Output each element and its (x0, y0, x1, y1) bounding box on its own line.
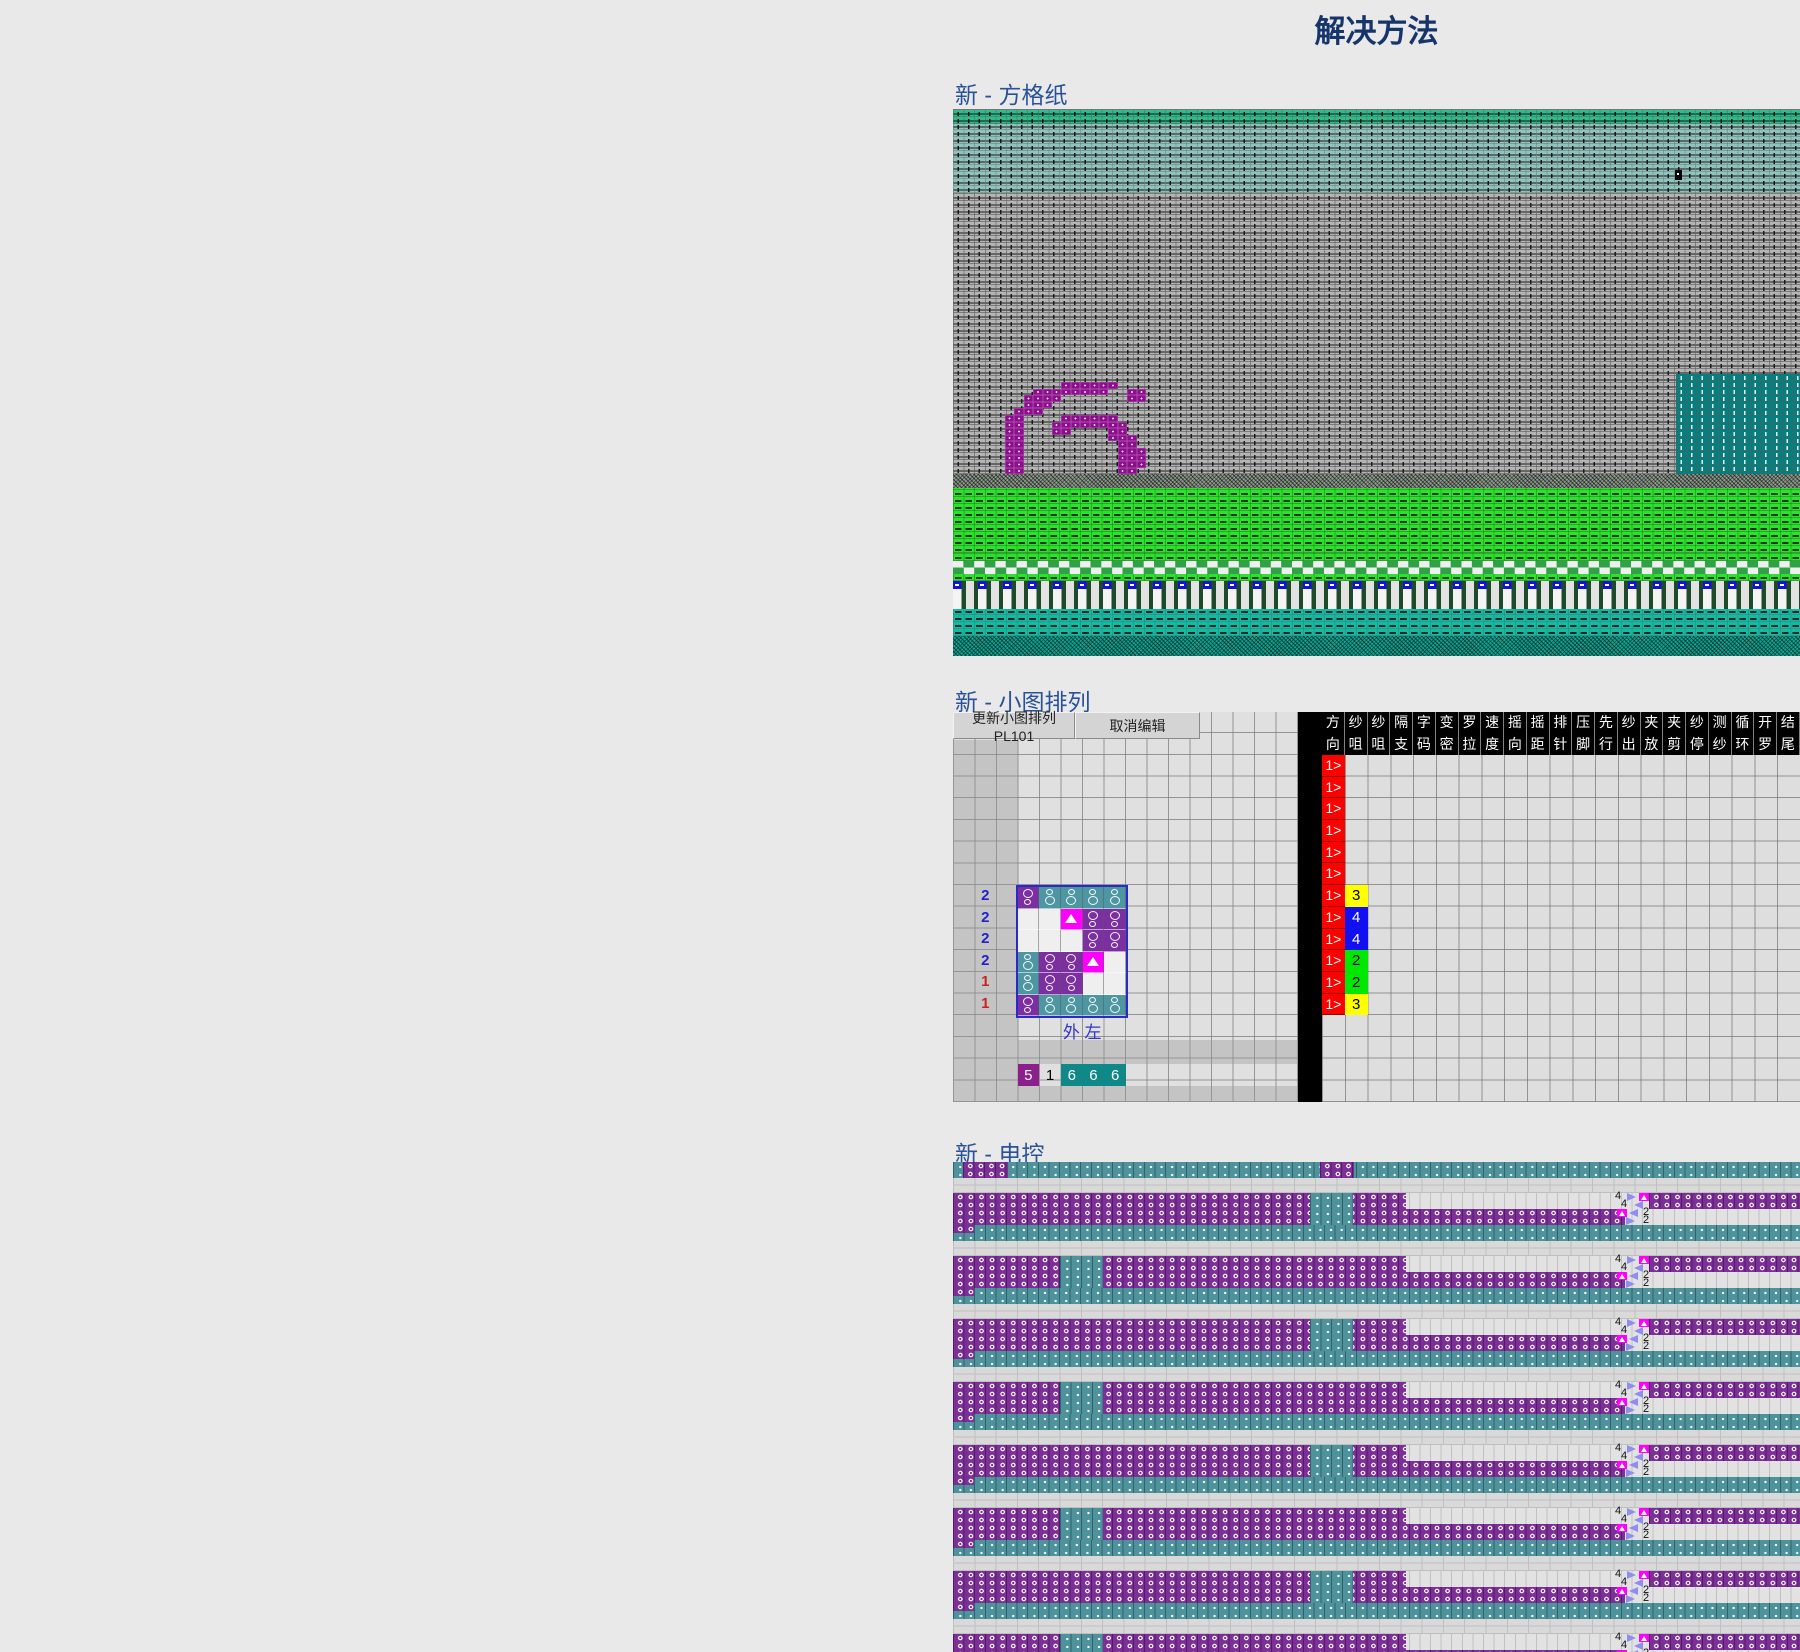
digit-pixel (1061, 389, 1070, 396)
stitch-ring-icon (1088, 1004, 1098, 1013)
stitch-ring-icon (1046, 964, 1053, 970)
direction-cell[interactable]: 1> (1322, 950, 1345, 972)
update-arrangement-button[interactable]: 更新小图排列 PL101 (953, 712, 1075, 739)
column-header: 变密 (1436, 712, 1459, 755)
econtrol-segment (1060, 1508, 1103, 1516)
digit-pixel (1118, 428, 1127, 435)
digit-pixel (1127, 455, 1136, 462)
direction-cell[interactable]: 1> (1322, 863, 1345, 885)
table-row[interactable]: 1> (1322, 755, 1800, 777)
econtrol-segment (1649, 1327, 1800, 1335)
pattern-cell[interactable] (1083, 973, 1105, 995)
pattern-footer-label: 外 (1061, 1018, 1083, 1043)
column-header: 隔支 (1390, 712, 1413, 755)
econtrol-segment (953, 1390, 1406, 1398)
econtrol-row (953, 1414, 1800, 1422)
carriage-right-icon (1627, 1571, 1636, 1579)
digit-pixel (1137, 455, 1146, 462)
pass-count: 2 (1643, 1594, 1649, 1603)
carriage-right-icon (1626, 1217, 1635, 1225)
econtrol-segment (953, 1603, 974, 1611)
column-header: 测纱 (1709, 712, 1732, 755)
transfer-cell (1617, 1461, 1627, 1469)
econtrol-segment (1310, 1319, 1353, 1327)
stitch-ring-icon (1111, 942, 1118, 948)
table-row[interactable]: 1>4 (1322, 929, 1800, 951)
band-teal-dense (953, 636, 1800, 656)
stitch-ring-icon (1066, 954, 1076, 963)
carriage-right-icon (1627, 1256, 1636, 1264)
econtrol-segment (1320, 1170, 1354, 1178)
table-row[interactable]: 1>3 (1322, 994, 1800, 1016)
econtrol-row (953, 1485, 1800, 1493)
stitch-ring-icon (1023, 889, 1033, 898)
stitch-ring-icon (1046, 985, 1053, 991)
digit-pixel (1005, 428, 1014, 435)
direction-cell[interactable]: 1> (1322, 777, 1345, 799)
pattern-footer-label: 左 (1082, 1018, 1104, 1043)
stitch-ring-icon (1111, 997, 1118, 1003)
page-title: 解决方法 (953, 6, 1800, 51)
digit-pixel (1033, 402, 1042, 409)
digit-pixel (1014, 415, 1023, 422)
econtrol-row (953, 1359, 1800, 1367)
econtrol-row (953, 1540, 1800, 1548)
grid-paper-canvas[interactable] (953, 109, 1800, 656)
econtrol-segment (1649, 1579, 1800, 1587)
stitch-ring-icon (1024, 954, 1031, 960)
econtrol-segment (1649, 1319, 1800, 1327)
pattern-cell[interactable] (1083, 930, 1105, 952)
band-gray (953, 193, 1800, 474)
column-header: 纱停 (1686, 712, 1709, 755)
digit-pixel (1071, 422, 1080, 429)
econtrol-row: 4 (953, 1579, 1800, 1587)
digit-pixel (1014, 408, 1023, 415)
table-row[interactable]: 1>3 (1322, 885, 1800, 907)
stitch-ring-icon (1024, 1007, 1031, 1013)
transfer-cell (1639, 1508, 1649, 1516)
table-row[interactable]: 1> (1322, 863, 1800, 885)
econtrol-segment (1649, 1264, 1800, 1272)
carriage-right-icon (1627, 1634, 1636, 1642)
econtrol-segment (1310, 1579, 1353, 1587)
econtrol-segment (1310, 1469, 1353, 1477)
digit-pixel (1118, 448, 1127, 455)
pattern-cell[interactable] (1061, 887, 1083, 909)
carriage-right-icon (1627, 1508, 1636, 1516)
digit-pixel (1137, 461, 1146, 468)
carriage-right-icon (1626, 1532, 1635, 1540)
stitch-ring-icon (1045, 975, 1055, 984)
digit-pixel (1127, 435, 1136, 442)
transfer-caret-icon (1087, 957, 1099, 966)
econtrol-segment (953, 1634, 1406, 1642)
econtrol-row: 4 (953, 1327, 1800, 1335)
pattern-cell[interactable] (1039, 909, 1061, 931)
direction-cell[interactable]: 1> (1322, 907, 1345, 929)
econtrol-segment (953, 1477, 1800, 1485)
econtrol-segment (1060, 1398, 1103, 1406)
econtrol-segment (953, 1485, 1800, 1493)
stitch-ring-icon (1110, 896, 1120, 905)
pattern-cell[interactable] (1083, 909, 1105, 931)
econtrol-row: 2 (953, 1461, 1800, 1469)
carriage-left-icon (1629, 1398, 1638, 1406)
econtrol-segment (1310, 1453, 1353, 1461)
stitch-ring-icon (1066, 1004, 1076, 1013)
stitch-ring-icon (1023, 997, 1033, 1006)
pattern-cell[interactable] (1018, 930, 1040, 952)
pattern-cell[interactable] (1104, 909, 1126, 931)
digit-pixel (1033, 395, 1042, 402)
transfer-cell (1617, 1524, 1627, 1532)
direction-cell[interactable]: 1> (1322, 820, 1345, 842)
count-cell[interactable]: 6 (1083, 1064, 1105, 1086)
econtrol-segment (953, 1359, 1800, 1367)
mini-pattern-block[interactable] (1018, 887, 1127, 1016)
econtrol-row (953, 1162, 1800, 1170)
band-blue-columns (953, 581, 1800, 609)
econtrol-row (953, 1233, 1800, 1241)
digit-pixel (1090, 382, 1099, 389)
econtrol-row: 2 (953, 1524, 1800, 1532)
digit-pixel (1099, 415, 1108, 422)
econtrol-segment (1310, 1587, 1353, 1595)
pattern-row-label: 2 (975, 952, 997, 969)
pattern-cell[interactable] (1104, 995, 1126, 1017)
band-checker (953, 561, 1800, 574)
econtrol-segment (953, 1296, 1800, 1304)
econtrol-row: 4 (953, 1445, 1800, 1453)
stitch-ring-icon (1088, 896, 1098, 905)
yarn-cell[interactable]: 4 (1345, 929, 1368, 951)
econtrol-segment (1060, 1406, 1103, 1414)
econtrol-segment (953, 1642, 1406, 1650)
digit-pixel (1080, 389, 1089, 396)
pattern-cell[interactable] (1018, 995, 1040, 1017)
transfer-cell (1639, 1382, 1649, 1390)
econtrol-row: 2 (953, 1209, 1800, 1217)
econtrol-segment (953, 1611, 1800, 1619)
econtrol-segment (1649, 1508, 1800, 1516)
transfer-cell (1639, 1256, 1649, 1264)
section-label-grid-paper: 新 - 方格纸 (955, 76, 1067, 110)
digit-pixel (1108, 382, 1117, 389)
econtrol-segment (953, 1477, 974, 1485)
transfer-cell (1639, 1445, 1649, 1453)
digit-pixel (1014, 435, 1023, 442)
digit-pixel (1033, 408, 1042, 415)
pattern-cell[interactable] (1104, 887, 1126, 909)
direction-cell[interactable]: 1> (1322, 994, 1345, 1016)
econtrol-spacer-row (953, 1241, 1800, 1256)
pattern-cell[interactable] (1061, 995, 1083, 1017)
econtrol-row: 2 (953, 1595, 1800, 1603)
pattern-cell[interactable] (1061, 973, 1083, 995)
column-header: 方向 (1322, 712, 1345, 755)
econtrol-row: 2 (953, 1398, 1800, 1406)
stitch-ring-icon (1024, 899, 1031, 905)
carriage-right-icon (1626, 1343, 1635, 1351)
column-header: 罗拉 (1459, 712, 1482, 755)
digit-pixel (1118, 461, 1127, 468)
grid-shaded-strip2 (1018, 1086, 1299, 1102)
digit-pixel (1099, 389, 1108, 396)
column-header: 夹剪 (1663, 712, 1686, 755)
digit-pixel (1033, 389, 1042, 396)
arrangement-grid[interactable]: 更新小图排列 PL101 取消编辑 222211 外左 51666 (953, 712, 1298, 1102)
stitch-ring-icon (1045, 954, 1055, 963)
pass-count: 4 (1621, 1326, 1627, 1335)
econtrol-segment (1060, 1516, 1103, 1524)
econtrol-segment (953, 1532, 1625, 1540)
econtrol-row: 4 (953, 1319, 1800, 1327)
pass-count: 2 (1643, 1531, 1649, 1540)
digit-pixel (1071, 415, 1080, 422)
econtrol-segment (963, 1162, 1008, 1170)
digit-pixel (1118, 441, 1127, 448)
econtrol-segment (953, 1540, 974, 1548)
econtrol-row (953, 1225, 1800, 1233)
transfer-cell (1639, 1193, 1649, 1201)
econtrol-segment (1310, 1201, 1353, 1209)
econtrol-segment (1649, 1642, 1800, 1650)
transfer-caret-icon (1065, 914, 1077, 923)
arrangement-table[interactable]: 方向纱咀纱咀隔支字码变密罗拉速度摇向摇距排针压脚先行纱出夹放夹剪纱停测纱循环开罗… (1322, 712, 1800, 1102)
carriage-left-icon (1634, 1201, 1643, 1209)
transfer-cell (1639, 1634, 1649, 1642)
count-cell[interactable]: 6 (1104, 1064, 1126, 1086)
pattern-cell[interactable] (1061, 930, 1083, 952)
digit-pixel (1080, 415, 1089, 422)
econtrol-segment (953, 1516, 1406, 1524)
yarn-cell[interactable]: 4 (1345, 907, 1368, 929)
count-cell[interactable]: 1 (1039, 1064, 1061, 1086)
digit-pixel (1005, 435, 1014, 442)
econtrol-row: 4 (953, 1571, 1800, 1579)
econtrol-spacer-row (953, 1304, 1800, 1319)
pattern-cell[interactable] (1104, 952, 1126, 974)
stitch-ring-icon (1066, 896, 1076, 905)
digit-pixel (1005, 448, 1014, 455)
table-row[interactable]: 1> (1322, 777, 1800, 799)
count-cell[interactable]: 5 (1018, 1064, 1040, 1086)
econtrol-segment (1649, 1571, 1800, 1579)
digit-pixel (1061, 415, 1070, 422)
digit-pixel (1005, 441, 1014, 448)
digit-pixel (1005, 415, 1014, 422)
transfer-cell (1617, 1398, 1627, 1406)
pattern-cell[interactable] (1039, 952, 1061, 974)
econtrol-segment (1649, 1382, 1800, 1390)
band-green-mark-row2 (953, 574, 1800, 581)
pass-count: 2 (1643, 1468, 1649, 1477)
direction-cell[interactable]: 1> (1322, 929, 1345, 951)
stitch-ring-icon (1110, 932, 1120, 941)
econtrol-row: 4 (953, 1193, 1800, 1201)
econtrol-segment (1060, 1390, 1103, 1398)
econtrol-segment (1310, 1343, 1353, 1351)
carriage-right-icon (1626, 1469, 1635, 1477)
econtrol-segment (953, 1548, 1800, 1556)
carriage-right-icon (1627, 1445, 1636, 1453)
pattern-row-label: 2 (975, 887, 997, 904)
pattern-cell[interactable] (1018, 909, 1040, 931)
econtrol-segment (953, 1351, 974, 1359)
econtrol-segment (953, 1256, 1406, 1264)
econtrol-segment (953, 1351, 1800, 1359)
econtrol-spacer-row (953, 1493, 1800, 1508)
econtrol-segment (1649, 1193, 1800, 1201)
econtrol-segment (1060, 1256, 1103, 1264)
econtrol-segment (953, 1540, 1800, 1548)
yarn-cell[interactable]: 2 (1345, 950, 1368, 972)
econtrol-segment (1649, 1516, 1800, 1524)
carriage-left-icon (1629, 1461, 1638, 1469)
digit-pixel (1099, 382, 1108, 389)
direction-cell[interactable]: 1> (1322, 755, 1345, 777)
digit-pixel (1043, 389, 1052, 396)
yarn-cell[interactable]: 3 (1345, 885, 1368, 907)
table-row[interactable]: 1> (1322, 842, 1800, 864)
digit-pixel (1127, 395, 1136, 402)
econtrol-row: 2 (953, 1335, 1800, 1343)
direction-cell[interactable]: 1> (1322, 885, 1345, 907)
table-row[interactable]: 1>2 (1322, 950, 1800, 972)
econtrol-segment (953, 1422, 1800, 1430)
digit-pixel (1014, 461, 1023, 468)
pattern-cell[interactable] (1083, 952, 1105, 974)
digit-pixel (1127, 389, 1136, 396)
stitch-ring-icon (1068, 889, 1075, 895)
econtrol-row: 4 (953, 1453, 1800, 1461)
digit-pixel (1043, 395, 1052, 402)
econtrol-row (953, 1603, 1800, 1611)
pass-count: 4 (1621, 1641, 1627, 1650)
column-header: 开罗 (1754, 712, 1777, 755)
econtrol-row (953, 1296, 1800, 1304)
pattern-cell[interactable] (1018, 952, 1040, 974)
econtrol-segment (1649, 1634, 1800, 1642)
digit-pixel (1071, 389, 1080, 396)
cancel-edit-button[interactable]: 取消编辑 (1075, 712, 1200, 739)
pattern-cell[interactable] (1083, 887, 1105, 909)
column-header: 摇向 (1504, 712, 1527, 755)
yarn-cell[interactable]: 3 (1345, 994, 1368, 1016)
carriage-right-icon (1627, 1319, 1636, 1327)
digit-pixel (1127, 461, 1136, 468)
pattern-cell[interactable] (1018, 973, 1040, 995)
pattern-cell[interactable] (1039, 973, 1061, 995)
direction-cell[interactable]: 1> (1322, 798, 1345, 820)
column-header: 排针 (1550, 712, 1573, 755)
digit-pixel (1005, 461, 1014, 468)
table-row[interactable]: 1>4 (1322, 907, 1800, 929)
stitch-ring-icon (1068, 997, 1075, 1003)
pattern-cell[interactable] (1018, 887, 1040, 909)
digit-pixel (1090, 389, 1099, 396)
pass-count: 2 (1643, 1279, 1649, 1288)
column-header: 纱咀 (1368, 712, 1391, 755)
econtrol-segment (1060, 1272, 1103, 1280)
table-row[interactable]: 1>2 (1322, 972, 1800, 994)
digit-pixel (1052, 389, 1061, 396)
table-column-headers: 方向纱咀纱咀隔支字码变密罗拉速度摇向摇距排针压脚先行纱出夹放夹剪纱停测纱循环开罗… (1322, 712, 1800, 755)
direction-cell[interactable]: 1> (1322, 972, 1345, 994)
econtrol-row: 2 (953, 1469, 1800, 1477)
pattern-cell[interactable] (1039, 887, 1061, 909)
carriage-left-icon (1629, 1335, 1638, 1343)
pattern-cell[interactable] (1104, 930, 1126, 952)
digit-pixel (1024, 402, 1033, 409)
econtrol-canvas[interactable]: 44224422442244224422442244224422 (953, 1162, 1800, 1652)
table-row[interactable]: 1> (1322, 820, 1800, 842)
pattern-row-label: 1 (975, 995, 997, 1012)
count-cell[interactable]: 6 (1061, 1064, 1083, 1086)
econtrol-segment (953, 1414, 1800, 1422)
econtrol-segment (1310, 1571, 1353, 1579)
digit-pixel (1052, 428, 1061, 435)
digit-pixel (1014, 441, 1023, 448)
pattern-cell[interactable] (1083, 995, 1105, 1017)
band-teal-dash (953, 609, 1800, 636)
econtrol-segment (1649, 1201, 1800, 1209)
econtrol-segment (1310, 1445, 1353, 1453)
econtrol-segment (1060, 1280, 1103, 1288)
stitch-ring-icon (1089, 889, 1096, 895)
pass-count: 2 (1643, 1405, 1649, 1414)
direction-cell[interactable]: 1> (1322, 842, 1345, 864)
stitch-ring-icon (1023, 961, 1033, 970)
column-header: 速度 (1481, 712, 1504, 755)
pattern-cell[interactable] (1061, 952, 1083, 974)
econtrol-row: 2 (953, 1280, 1800, 1288)
carriage-left-icon (1634, 1264, 1643, 1272)
carriage-right-icon (1627, 1382, 1636, 1390)
carriage-right-icon (1626, 1406, 1635, 1414)
econtrol-row: 2 (953, 1272, 1800, 1280)
digit-pixel (1014, 422, 1023, 429)
carriage-left-icon (1634, 1579, 1643, 1587)
table-row[interactable]: 1> (1322, 798, 1800, 820)
stitch-ring-icon (1111, 921, 1118, 927)
column-header: 压脚 (1572, 712, 1595, 755)
pass-count: 4 (1621, 1200, 1627, 1209)
econtrol-row: 4 (953, 1382, 1800, 1390)
econtrol-segment (1310, 1217, 1353, 1225)
pattern-cell[interactable] (1104, 973, 1126, 995)
econtrol-segment (1310, 1193, 1353, 1201)
pattern-cell[interactable] (1039, 930, 1061, 952)
digit-pixel (1061, 422, 1070, 429)
econtrol-segment (953, 1280, 1625, 1288)
yarn-cell[interactable]: 2 (1345, 972, 1368, 994)
transfer-cell (1617, 1272, 1627, 1280)
econtrol-segment (1060, 1532, 1103, 1540)
pattern-cell[interactable] (1061, 909, 1083, 931)
econtrol-row (953, 1611, 1800, 1619)
digit-pixel (1005, 422, 1014, 429)
pass-count: 4 (1621, 1515, 1627, 1524)
econtrol-segment (953, 1406, 1625, 1414)
econtrol-segment (1649, 1390, 1800, 1398)
econtrol-segment (953, 1469, 1625, 1477)
pass-count: 4 (1621, 1578, 1627, 1587)
pattern-row-label: 1 (975, 973, 997, 990)
digit-pixel (1014, 455, 1023, 462)
pattern-cell[interactable] (1039, 995, 1061, 1017)
